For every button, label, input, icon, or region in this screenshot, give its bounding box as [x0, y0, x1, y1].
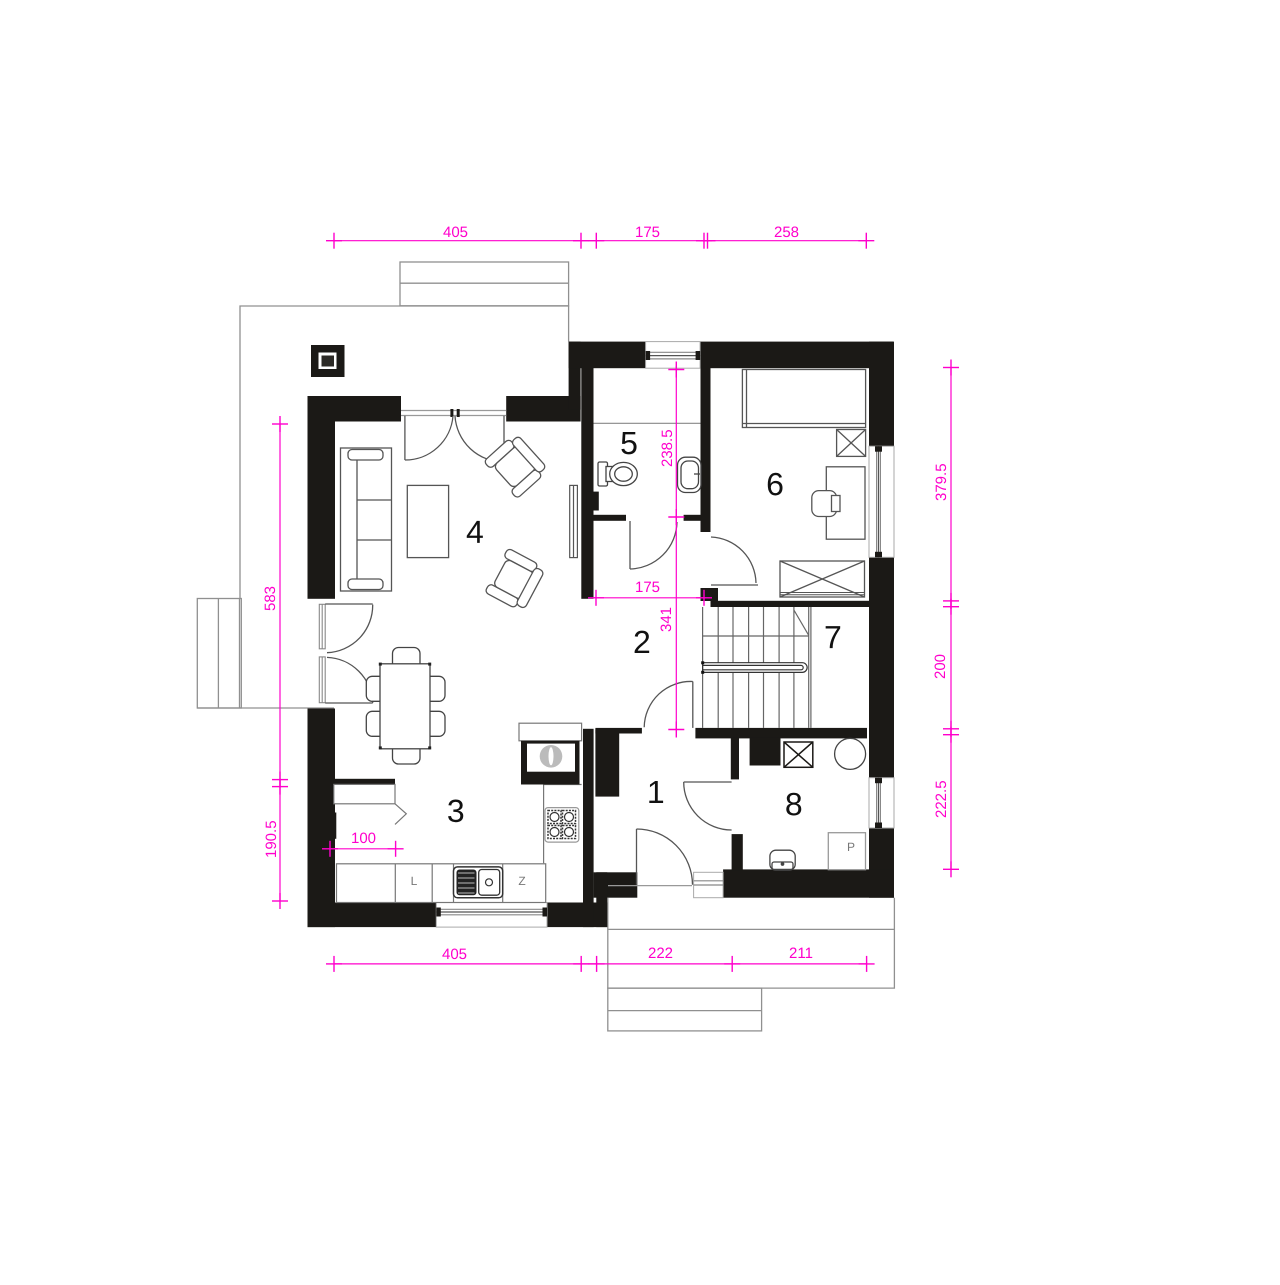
svg-text:341: 341	[658, 607, 675, 632]
svg-text:222.5: 222.5	[933, 780, 950, 818]
svg-text:211: 211	[789, 945, 813, 962]
svg-text:175: 175	[635, 579, 660, 596]
svg-text:7: 7	[824, 619, 842, 655]
svg-text:100: 100	[351, 830, 376, 847]
svg-text:405: 405	[443, 224, 468, 241]
svg-text:2: 2	[633, 624, 651, 660]
svg-text:200: 200	[932, 654, 949, 679]
svg-text:4: 4	[466, 514, 484, 550]
svg-text:3: 3	[447, 793, 465, 829]
svg-text:P: P	[847, 840, 855, 854]
svg-text:379.5: 379.5	[933, 463, 950, 501]
svg-text:175: 175	[635, 224, 660, 241]
svg-text:1: 1	[647, 774, 665, 810]
svg-text:190.5: 190.5	[263, 820, 280, 858]
svg-text:238.5: 238.5	[659, 429, 676, 467]
svg-text:405: 405	[442, 946, 467, 963]
svg-text:Z: Z	[518, 874, 525, 888]
svg-text:222: 222	[648, 945, 673, 962]
svg-text:6: 6	[766, 466, 784, 502]
svg-text:583: 583	[262, 586, 279, 611]
svg-text:L: L	[411, 874, 418, 888]
svg-text:5: 5	[620, 425, 638, 461]
svg-text:8: 8	[785, 786, 803, 822]
svg-text:258: 258	[774, 224, 799, 241]
